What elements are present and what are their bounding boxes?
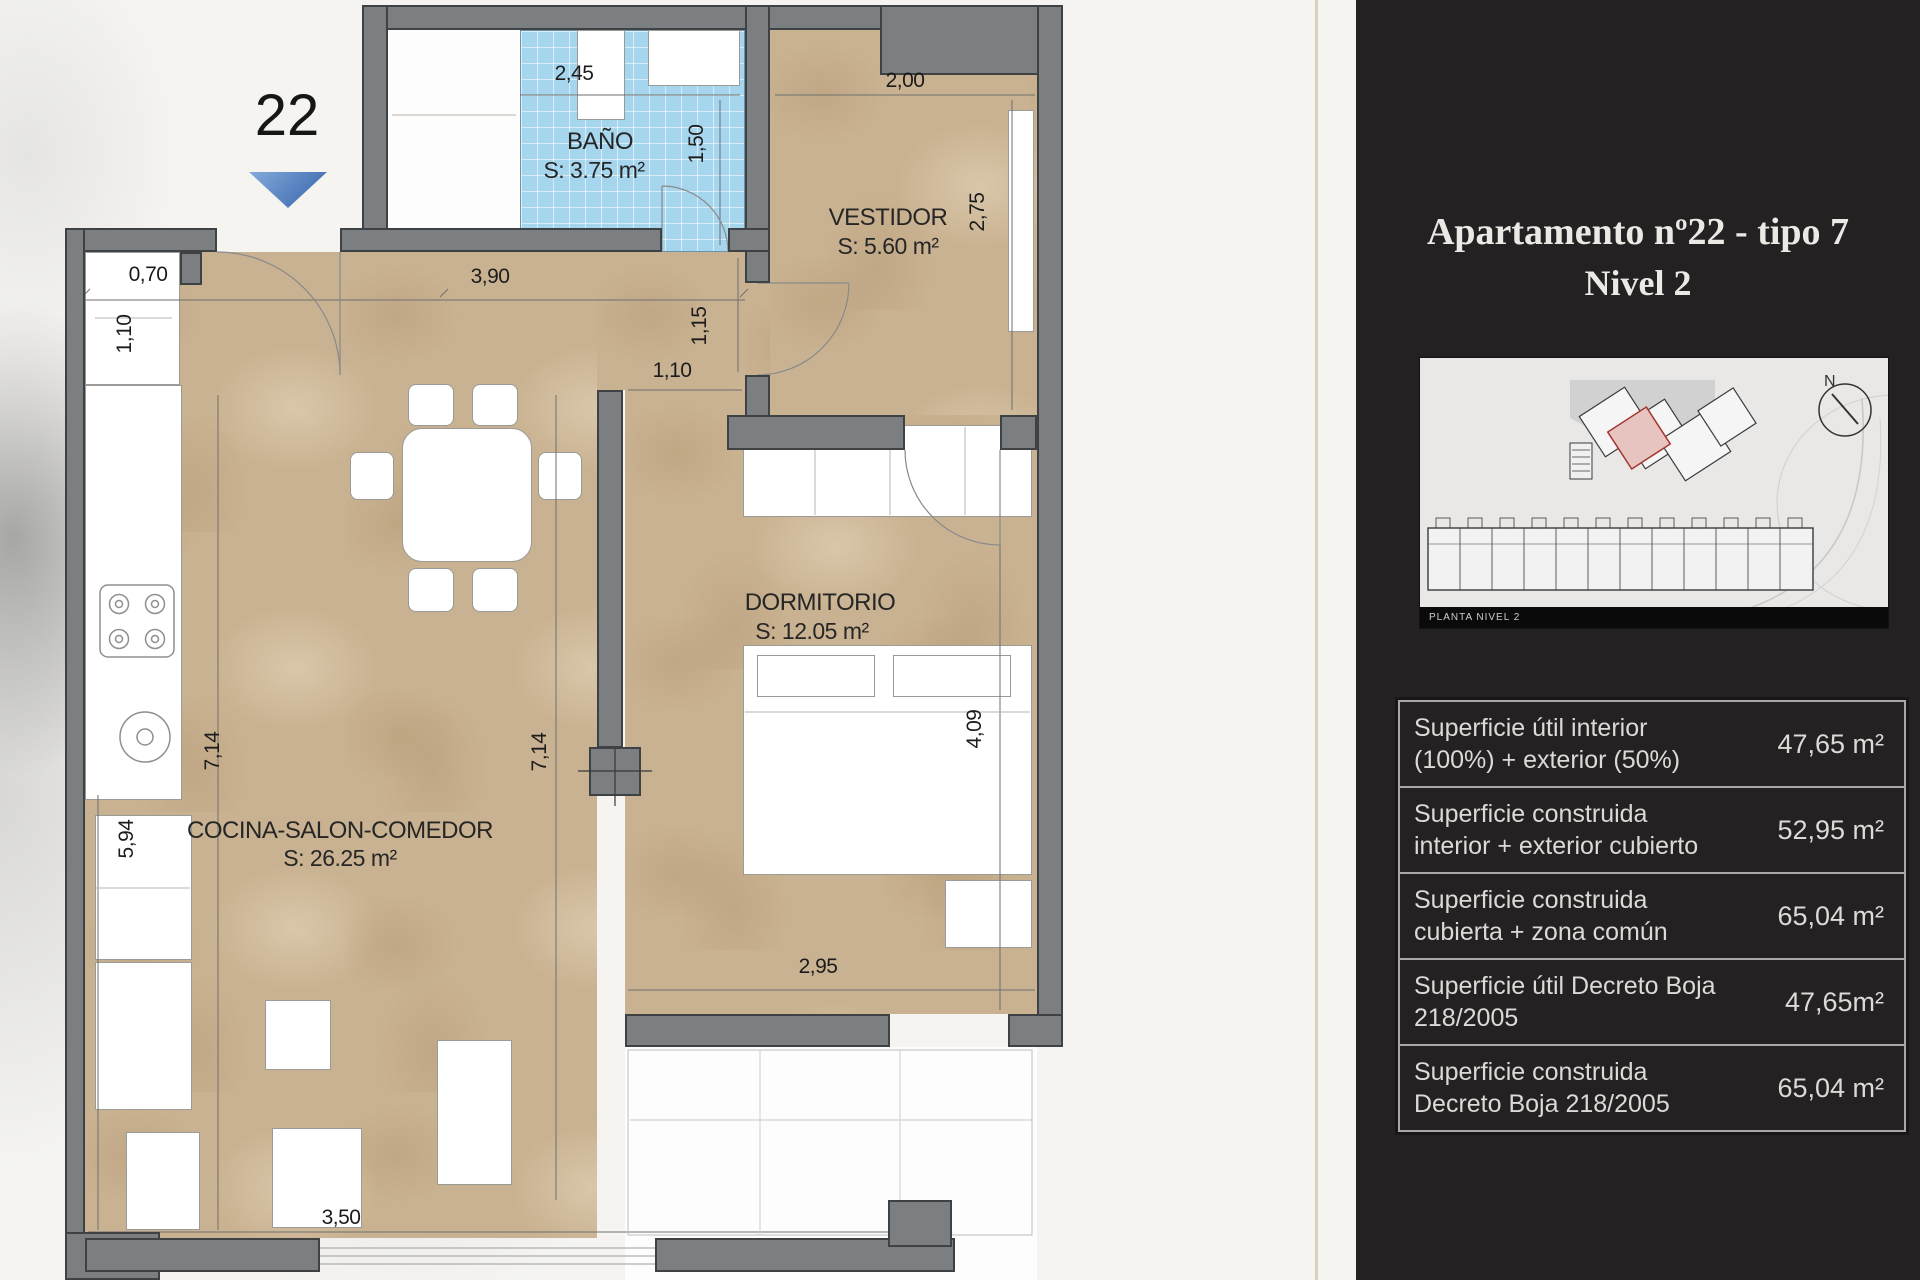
dim-dormitorio-depth: 4,09 [963,697,987,761]
row-label-line1: Superficie construida [1414,884,1716,916]
wall [625,1014,890,1047]
compass-north-label: N [1824,373,1836,390]
vestidor-area: S: 5.60 m² [798,233,978,260]
table-row: Superficie construida interior + exterio… [1400,786,1904,872]
row-value: 65,04 m² [1726,901,1904,932]
bathroom-area: S: 3.75 m² [504,157,684,184]
info-panel: Apartamento nº22 - tipo 7 Nivel 2 [1356,0,1920,1280]
apartment-title: Apartamento nº22 - tipo 7 [1356,210,1920,254]
table-row: Superficie útil interior (100%) + exteri… [1400,702,1904,786]
dim-vestidor-width: 2,00 [873,69,937,93]
row-label-line1: Superficie construida [1414,1056,1716,1088]
dim-salon-width: 3,50 [309,1206,373,1230]
row-label-line2: Decreto Boja 218/2005 [1414,1088,1716,1120]
bathroom-label: BAÑO [510,128,690,156]
wall [65,228,217,252]
row-label-line1: Superficie construida [1414,798,1716,830]
wall [1037,5,1063,1047]
row-value: 47,65 m² [1726,729,1904,760]
area-table: Superficie útil interior (100%) + exteri… [1398,700,1906,1132]
site-plan-caption: PLANTA NIVEL 2 [1420,607,1888,628]
row-label-line1: Superficie útil Decreto Boja [1414,970,1716,1002]
vestidor-label: VESTIDOR [798,204,978,232]
site-plan-thumbnail: N PLANTA NIVEL 2 [1420,358,1888,628]
unit-number-label: 22 [227,82,347,149]
wall [1000,415,1037,450]
row-label: Superficie útil interior (100%) + exteri… [1400,708,1726,780]
wall [1008,1014,1063,1047]
wall [880,5,1063,75]
salon-area: S: 26.25 m² [180,845,500,872]
row-value: 47,65m² [1726,987,1904,1018]
site-plan-drawing: N [1420,358,1888,628]
dim-passage-width: 1,10 [640,359,704,383]
dim-window-width: 0,70 [116,263,180,287]
row-label-line2: (100%) + exterior (50%) [1414,744,1716,776]
wall [340,228,662,252]
wall [85,1238,320,1272]
row-label-line2: cubierta + zona común [1414,916,1716,948]
row-label-line2: 218/2005 [1414,1002,1716,1034]
wall [728,228,770,252]
row-value: 65,04 m² [1726,1073,1904,1104]
dim-passage-depth: 1,15 [688,294,712,358]
dormitorio-area: S: 12.05 m² [722,618,902,645]
wall [727,415,905,450]
wall [362,5,388,252]
table-row: Superficie construida cubierta + zona co… [1400,872,1904,958]
dim-hall-width: 3,90 [458,265,522,289]
plan-linework [0,0,1356,1280]
table-row: Superficie construida Decreto Boja 218/2… [1400,1044,1904,1130]
wall [597,390,623,748]
dim-vestidor-depth: 2,75 [966,180,990,244]
dim-window-depth: 1,10 [113,302,137,366]
row-label: Superficie construida Decreto Boja 218/2… [1400,1052,1726,1124]
row-label: Superficie útil Decreto Boja 218/2005 [1400,966,1726,1038]
dim-bano-width: 2,45 [542,62,606,86]
row-label: Superficie construida cubierta + zona co… [1400,880,1726,952]
row-label-line1: Superficie útil interior [1414,712,1716,744]
row-label: Superficie construida interior + exterio… [1400,794,1726,866]
dim-bano-depth: 1,50 [685,112,709,176]
dim-salon-depth-left: 7,14 [201,719,225,783]
dim-salon-side: 5,94 [115,807,139,871]
wall [180,252,202,285]
dim-dormitorio-width: 2,95 [786,955,850,979]
dim-salon-depth-right: 7,14 [528,720,552,784]
wall [888,1200,952,1247]
dormitorio-label: DORMITORIO [730,589,910,617]
table-row: Superficie útil Decreto Boja 218/2005 47… [1400,958,1904,1044]
floor-plan-page: 22 BAÑO S: 3.75 m² VESTIDOR S: 5.60 m² D… [0,0,1356,1280]
level-title: Nivel 2 [1356,262,1920,304]
row-value: 52,95 m² [1726,815,1904,846]
salon-label: COCINA-SALON-COMEDOR [180,817,500,845]
wall [65,228,85,1280]
row-label-line2: interior + exterior cubierto [1414,830,1716,862]
